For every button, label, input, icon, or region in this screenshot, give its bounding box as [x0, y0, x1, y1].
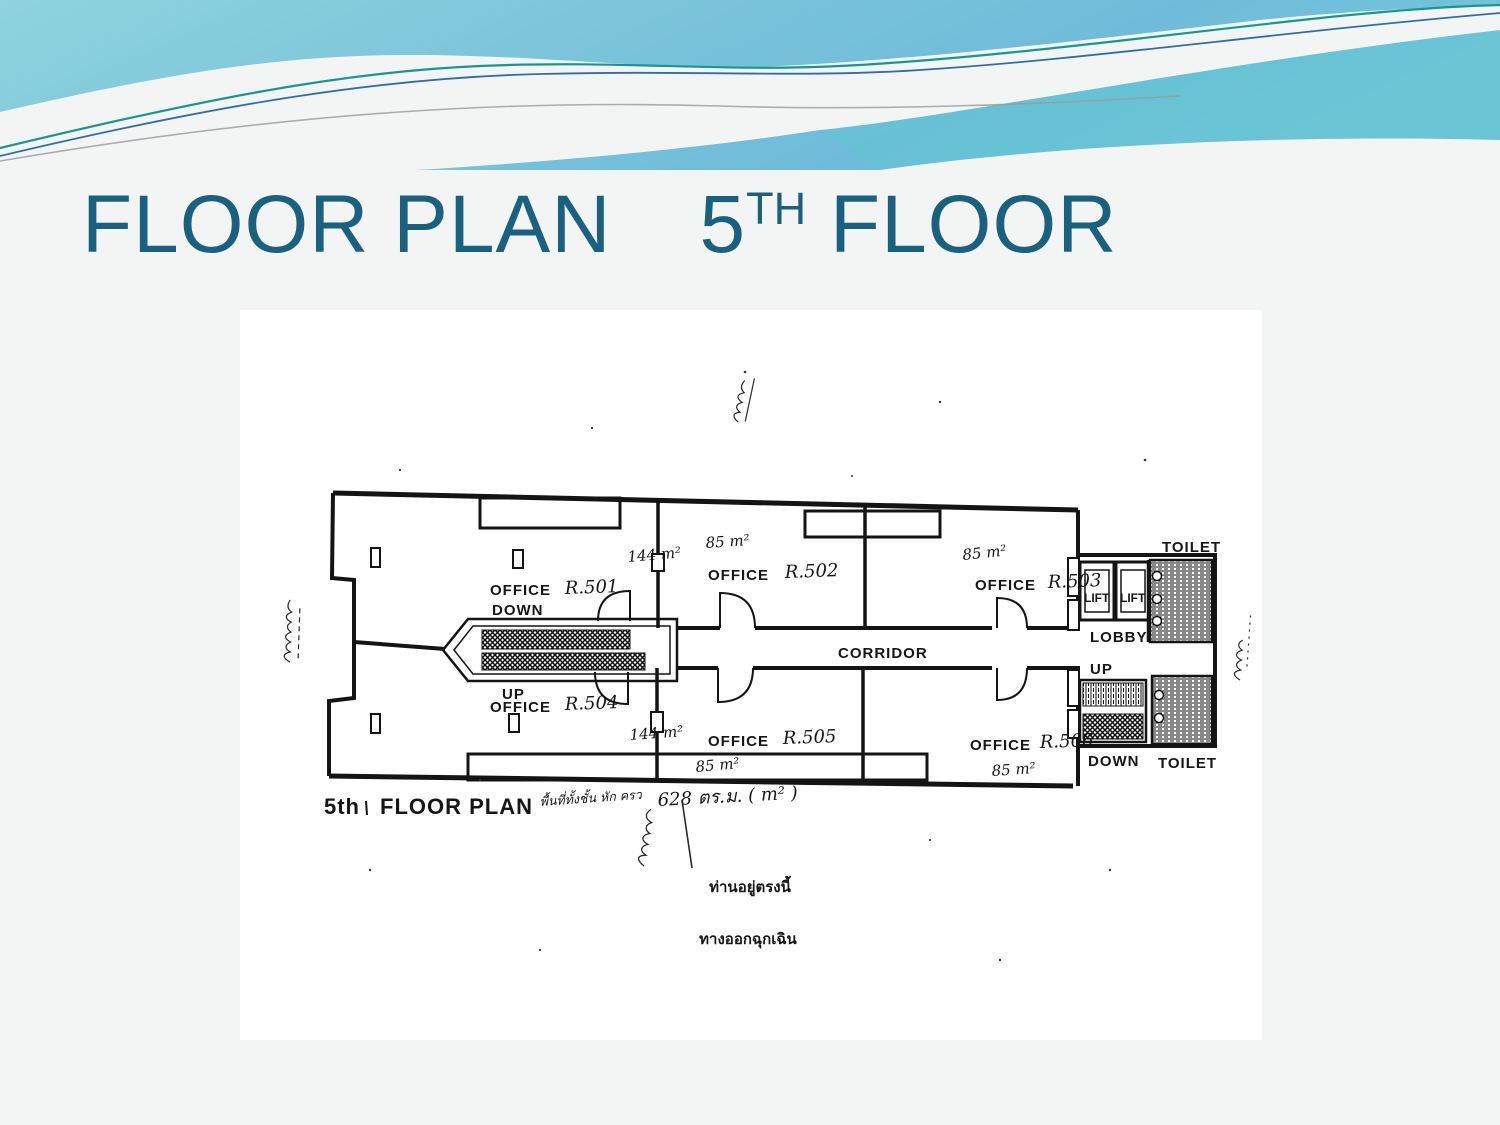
toilet-bottom-label: TOILET — [1158, 755, 1217, 772]
room-504-number: R.504 — [563, 692, 618, 715]
room-505-area: 85 m² — [695, 754, 740, 776]
room-501-office: OFFICE — [490, 582, 551, 599]
room-506-number: R.506 — [1038, 730, 1093, 753]
lift2-label: LIFT — [1120, 591, 1146, 605]
lift1-label: LIFT — [1084, 591, 1110, 605]
title-superscript: TH — [746, 183, 806, 234]
caption-floor: 5th — [324, 794, 360, 819]
lobby-up-label: UP — [1090, 661, 1113, 678]
toilet-top-area — [1150, 560, 1212, 642]
title-number: 5 — [699, 179, 746, 270]
room-501-number: R.501 — [563, 576, 618, 599]
wave-banner — [0, 0, 1500, 170]
room-504-area: 144 m² — [629, 722, 684, 744]
title-part2: FLOOR — [806, 179, 1117, 270]
room-506-office: OFFICE — [970, 737, 1031, 754]
room-503-office: OFFICE — [975, 577, 1036, 594]
toilet-top-label: TOILET — [1162, 539, 1221, 556]
room-505-number: R.505 — [781, 726, 836, 749]
emergency-exit-label: ทางออกฉุกเฉิน — [699, 930, 797, 949]
stairs-down-label: DOWN — [492, 602, 544, 619]
toilet-bottom-area — [1152, 676, 1212, 744]
slide-title: FLOOR PLAN5TH FLOOR — [82, 178, 1442, 272]
room-506-area: 85 m² — [991, 759, 1036, 780]
stairs-up-label: UP — [502, 686, 525, 703]
floor-plan-image: OFFICE R.501 144 m² OFFICE R.502 85 m² O… — [240, 310, 1262, 1045]
slide: FLOOR PLAN5TH FLOOR — [0, 0, 1500, 1125]
room-502-area: 85 m² — [705, 531, 750, 552]
room-503-number: R.503 — [1046, 570, 1101, 593]
room-505-office: OFFICE — [708, 733, 769, 750]
annex-down-label: DOWN — [1088, 753, 1140, 770]
corridor-label: CORRIDOR — [838, 645, 928, 662]
title-part1: FLOOR PLAN — [82, 179, 611, 270]
room-502-office: OFFICE — [708, 567, 769, 584]
room-502-number: R.502 — [783, 560, 838, 583]
you-are-here-label: ท่านอยู่ตรงนี้ — [709, 875, 791, 897]
caption-text: FLOOR PLAN — [380, 794, 533, 819]
lobby-label: LOBBY — [1090, 629, 1148, 646]
